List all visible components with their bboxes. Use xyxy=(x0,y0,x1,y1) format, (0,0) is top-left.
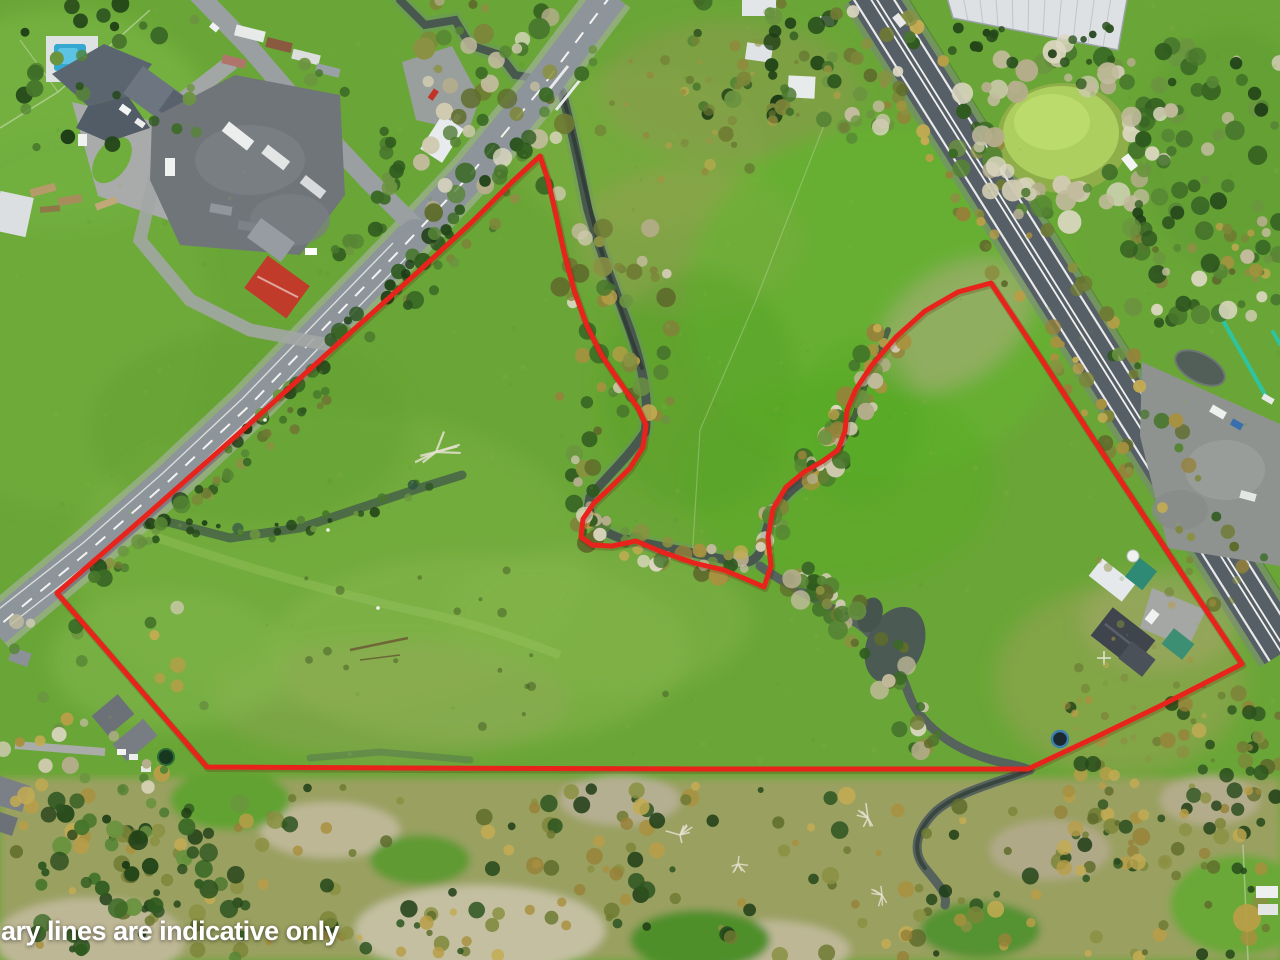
trampoline xyxy=(158,749,174,765)
bird xyxy=(376,606,380,610)
aerial-photo-art xyxy=(0,0,1280,960)
parked-car xyxy=(129,754,138,760)
parked-camper xyxy=(1256,886,1278,898)
parked-van xyxy=(78,134,87,146)
patio-umbrella xyxy=(1127,550,1139,562)
bird xyxy=(263,418,267,422)
van xyxy=(165,158,175,176)
parked-camper xyxy=(1258,904,1278,915)
caption-text: ary lines are indicative only xyxy=(1,916,339,947)
bird xyxy=(326,528,330,532)
aerial-photo: ary lines are indicative only xyxy=(0,0,1280,960)
van xyxy=(305,248,317,255)
parked-car xyxy=(117,749,126,755)
trampoline xyxy=(1052,731,1068,747)
